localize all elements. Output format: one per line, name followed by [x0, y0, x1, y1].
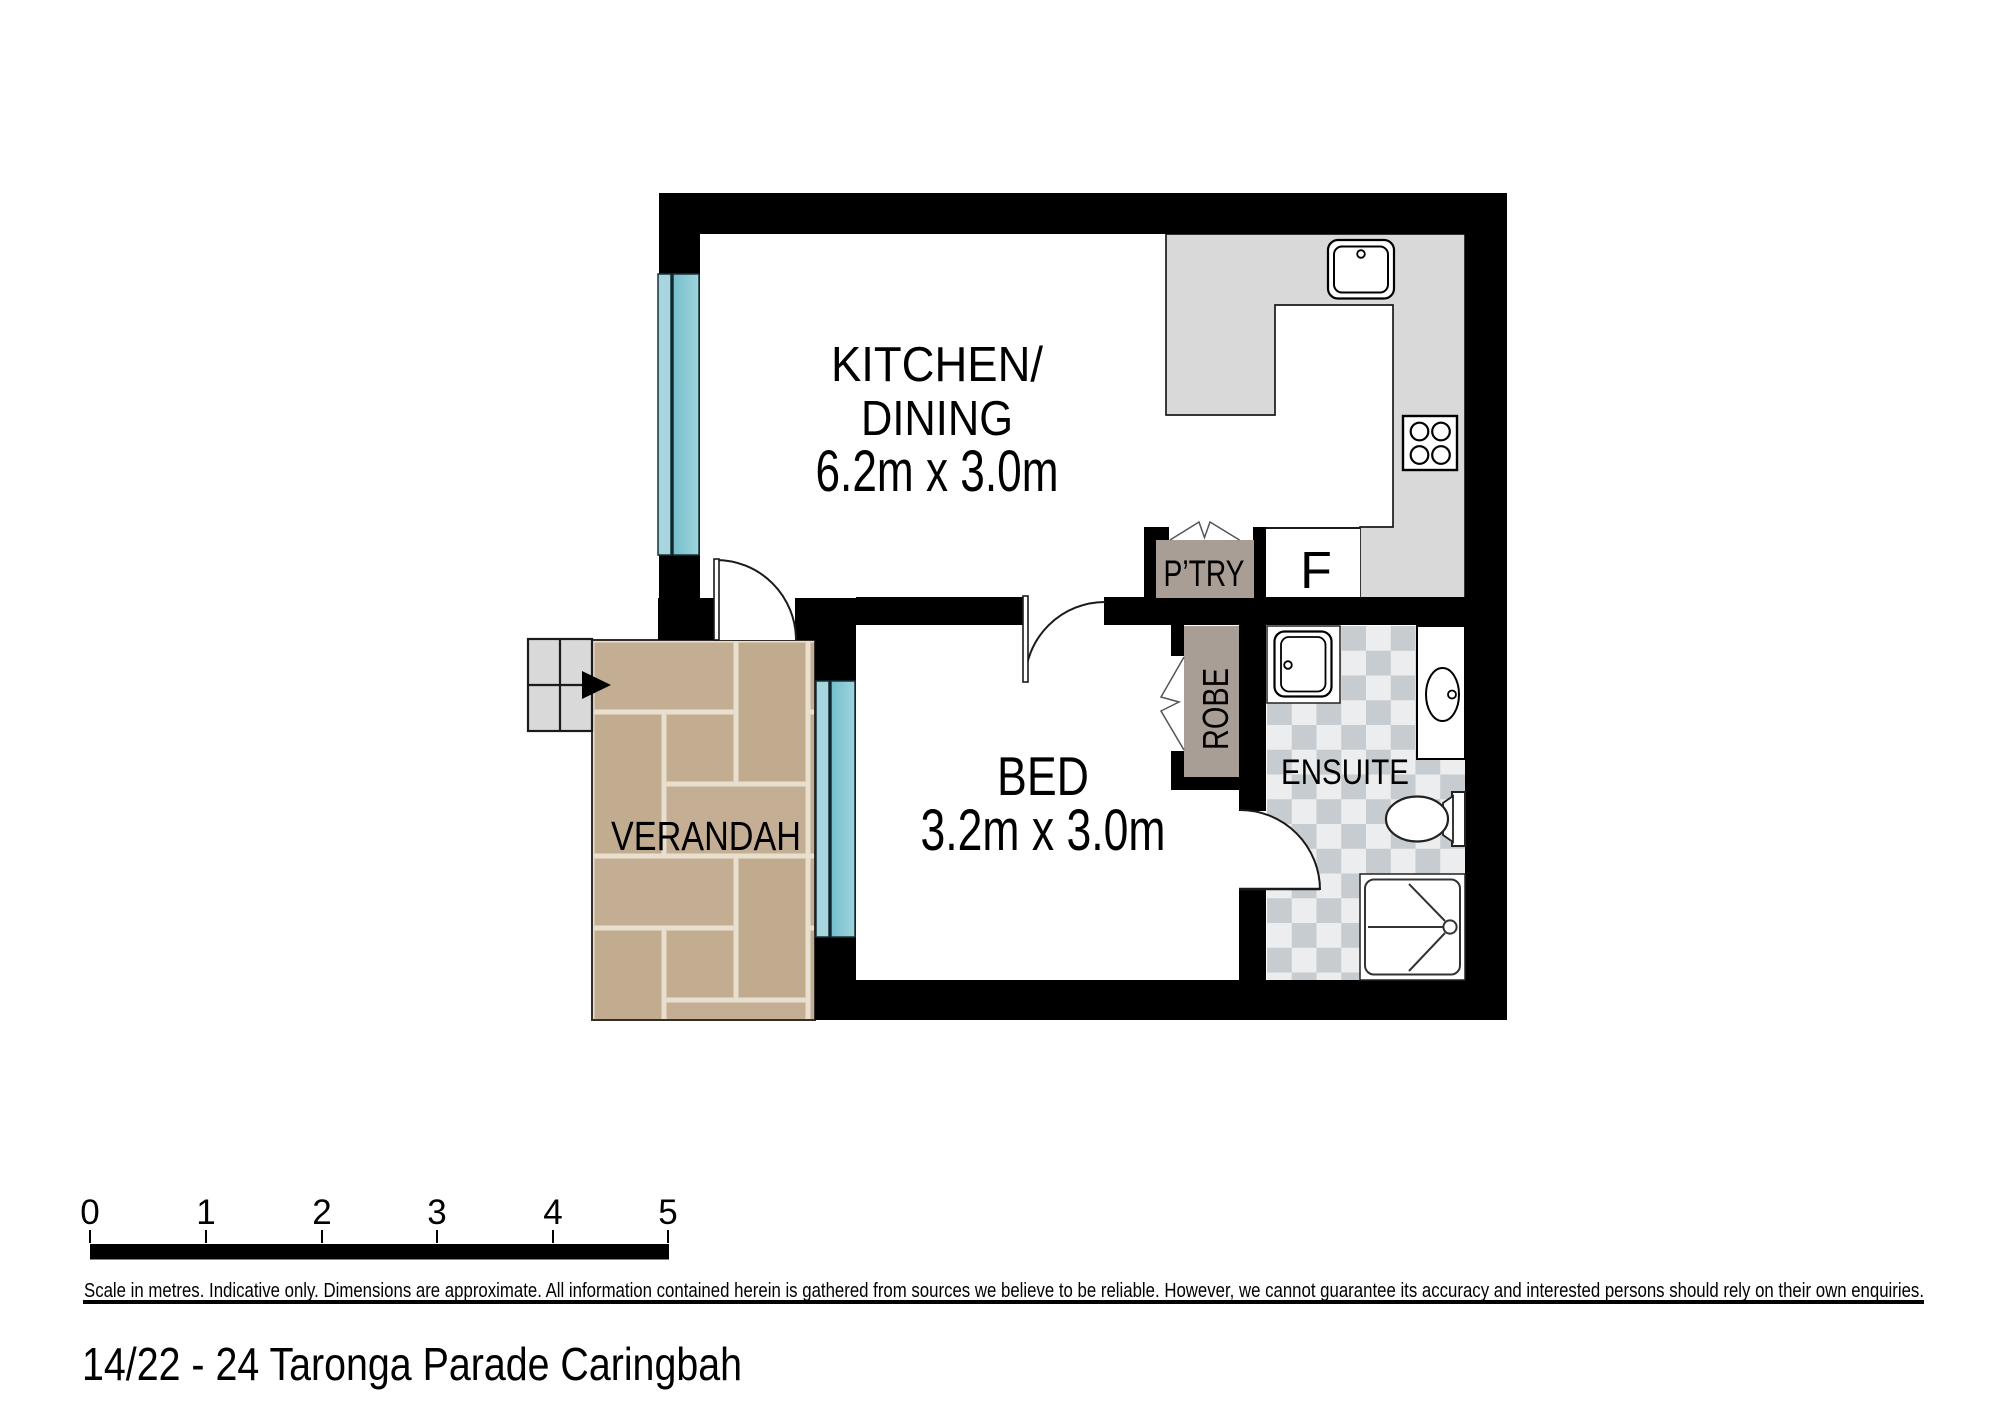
svg-text:P’TRY: P’TRY: [1164, 553, 1245, 594]
svg-text:VERANDAH: VERANDAH: [611, 813, 801, 859]
svg-text:Scale in metres. Indicative on: Scale in metres. Indicative only. Dimens…: [84, 1279, 1924, 1302]
svg-text:14/22 - 24 Taronga Parade Cari: 14/22 - 24 Taronga Parade Caringbah: [82, 1338, 742, 1390]
svg-text:0: 0: [80, 1193, 99, 1232]
svg-text:3.2m x 3.0m: 3.2m x 3.0m: [921, 798, 1166, 863]
svg-text:1: 1: [196, 1193, 215, 1232]
svg-text:5: 5: [658, 1193, 677, 1232]
svg-text:2: 2: [312, 1193, 331, 1232]
svg-text:ROBE: ROBE: [1195, 668, 1236, 750]
svg-text:DINING: DINING: [861, 392, 1013, 446]
svg-text:4: 4: [543, 1193, 562, 1232]
svg-text:ENSUITE: ENSUITE: [1281, 753, 1409, 792]
svg-text:F: F: [1300, 542, 1332, 600]
svg-text:3: 3: [427, 1193, 446, 1232]
svg-text:KITCHEN/: KITCHEN/: [831, 338, 1043, 392]
svg-text:6.2m x 3.0m: 6.2m x 3.0m: [816, 439, 1059, 504]
